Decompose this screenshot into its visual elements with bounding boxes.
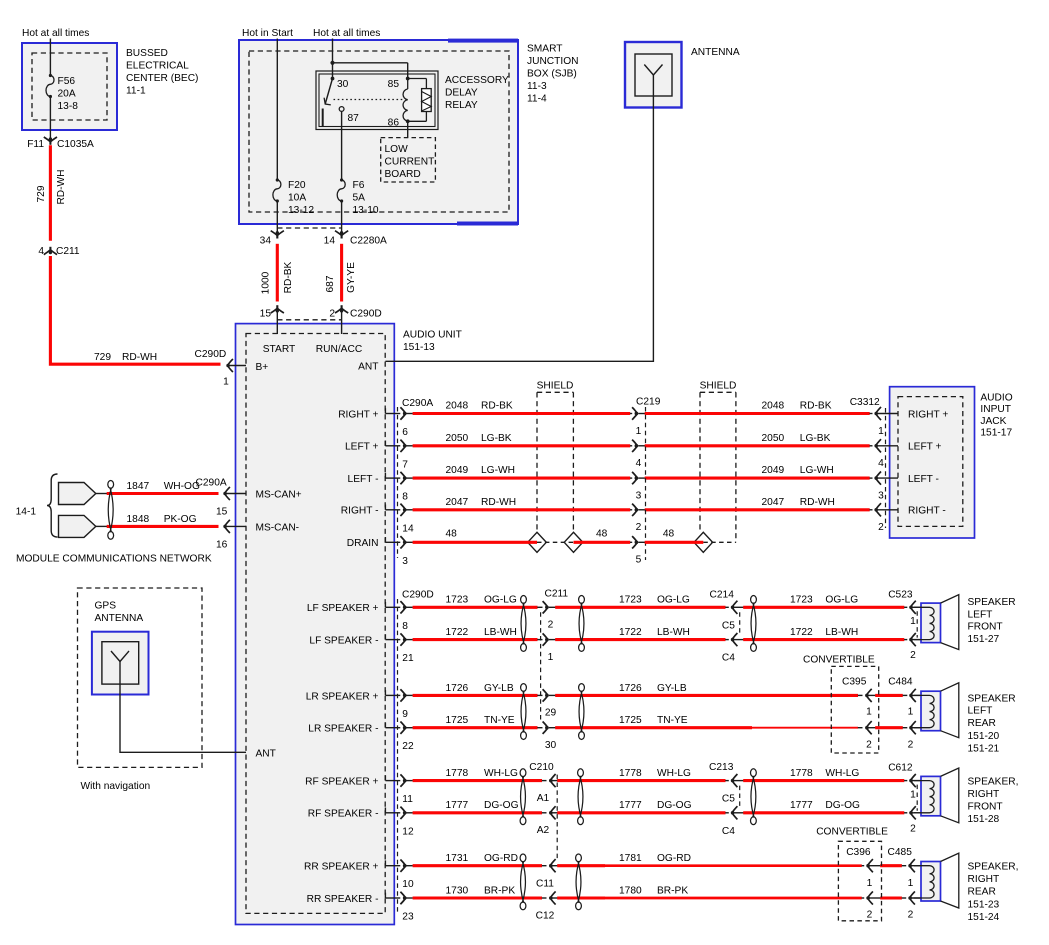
svg-text:30: 30 — [545, 740, 557, 751]
svg-text:1: 1 — [878, 426, 884, 437]
svg-text:CENTER (BEC): CENTER (BEC) — [126, 73, 198, 84]
svg-text:2049: 2049 — [446, 465, 469, 476]
svg-text:C485: C485 — [888, 847, 913, 858]
svg-text:LEFT: LEFT — [968, 706, 993, 717]
svg-text:LEFT: LEFT — [968, 609, 993, 620]
svg-text:REAR: REAR — [968, 887, 996, 898]
svg-text:1726: 1726 — [446, 683, 469, 694]
svg-text:OG-RD: OG-RD — [657, 853, 691, 864]
svg-text:PK-OG: PK-OG — [164, 514, 197, 525]
svg-text:2: 2 — [910, 650, 916, 661]
svg-text:C290A: C290A — [402, 398, 433, 409]
svg-text:1781: 1781 — [619, 853, 642, 864]
svg-text:BOX (SJB): BOX (SJB) — [527, 69, 577, 80]
svg-text:JUNCTION: JUNCTION — [527, 56, 579, 67]
svg-text:FRONT: FRONT — [968, 622, 1003, 633]
svg-text:C214: C214 — [710, 589, 735, 600]
svg-text:2050: 2050 — [762, 433, 785, 444]
svg-text:1000: 1000 — [261, 271, 272, 294]
svg-text:F6: F6 — [353, 180, 365, 191]
svg-text:C523: C523 — [888, 589, 913, 600]
svg-text:LEFT +: LEFT + — [345, 442, 379, 453]
svg-text:DG-OG: DG-OG — [484, 800, 519, 811]
svg-text:29: 29 — [545, 708, 557, 719]
svg-text:2047: 2047 — [446, 497, 469, 508]
svg-text:LG-WH: LG-WH — [800, 465, 834, 476]
svg-text:A2: A2 — [537, 825, 550, 836]
svg-text:16: 16 — [216, 540, 228, 551]
svg-text:1: 1 — [867, 878, 873, 889]
svg-text:729: 729 — [36, 185, 47, 202]
svg-text:151-28: 151-28 — [968, 814, 1000, 825]
svg-text:RD-WH: RD-WH — [56, 169, 67, 204]
svg-text:C290D: C290D — [350, 309, 382, 320]
svg-text:ELECTRICAL: ELECTRICAL — [126, 61, 189, 72]
svg-text:86: 86 — [388, 118, 400, 129]
svg-text:RIGHT +: RIGHT + — [908, 409, 948, 420]
svg-text:3: 3 — [878, 490, 884, 501]
svg-text:687: 687 — [325, 275, 336, 292]
svg-text:10A: 10A — [288, 193, 306, 204]
svg-text:1778: 1778 — [619, 768, 642, 779]
svg-text:F56: F56 — [58, 76, 76, 87]
svg-text:1725: 1725 — [619, 715, 642, 726]
svg-text:C213: C213 — [709, 762, 734, 773]
svg-text:1726: 1726 — [619, 683, 642, 694]
svg-text:SPEAKER: SPEAKER — [968, 693, 1016, 704]
svg-text:C219: C219 — [636, 396, 661, 407]
svg-text:WH-LG: WH-LG — [825, 768, 859, 779]
svg-text:30: 30 — [337, 79, 349, 90]
svg-text:4: 4 — [878, 458, 884, 469]
svg-text:85: 85 — [388, 79, 400, 90]
svg-text:1: 1 — [910, 789, 916, 800]
svg-text:DG-OG: DG-OG — [825, 800, 860, 811]
svg-text:LEFT +: LEFT + — [908, 442, 942, 453]
svg-text:JACK: JACK — [980, 416, 1006, 427]
svg-text:RD-BK: RD-BK — [481, 401, 513, 412]
svg-text:BOARD: BOARD — [385, 169, 421, 180]
svg-text:22: 22 — [402, 741, 414, 752]
svg-text:LEFT -: LEFT - — [908, 474, 939, 485]
svg-text:2: 2 — [910, 823, 916, 834]
svg-text:GY-LB: GY-LB — [484, 683, 514, 694]
svg-text:15: 15 — [260, 309, 272, 320]
svg-text:1777: 1777 — [619, 800, 642, 811]
svg-text:1723: 1723 — [619, 595, 642, 606]
svg-text:ANT: ANT — [256, 748, 276, 759]
svg-text:RIGHT -: RIGHT - — [341, 506, 379, 517]
svg-text:DRAIN: DRAIN — [347, 538, 379, 549]
svg-text:13-10: 13-10 — [353, 205, 379, 216]
svg-text:9: 9 — [402, 709, 408, 720]
svg-text:C5: C5 — [722, 794, 735, 805]
svg-text:2047: 2047 — [762, 497, 785, 508]
svg-text:13-8: 13-8 — [58, 101, 79, 112]
svg-text:SHIELD: SHIELD — [700, 380, 737, 391]
svg-text:SPEAKER,: SPEAKER, — [968, 776, 1019, 787]
svg-text:1: 1 — [908, 878, 914, 889]
svg-text:RD-WH: RD-WH — [122, 352, 157, 363]
svg-text:Hot at all times: Hot at all times — [313, 28, 380, 39]
svg-text:DG-OG: DG-OG — [657, 800, 692, 811]
svg-text:MS-CAN+: MS-CAN+ — [256, 489, 302, 500]
svg-text:F11: F11 — [27, 139, 44, 150]
svg-text:SMART: SMART — [527, 44, 562, 55]
svg-text:C11: C11 — [536, 878, 554, 889]
svg-text:RUN/ACC: RUN/ACC — [316, 344, 362, 355]
svg-text:2048: 2048 — [762, 401, 785, 412]
svg-text:TN-YE: TN-YE — [657, 715, 688, 726]
svg-text:C396: C396 — [846, 847, 871, 858]
svg-text:2: 2 — [908, 740, 914, 751]
svg-text:11-4: 11-4 — [527, 94, 547, 105]
svg-text:1848: 1848 — [127, 514, 150, 525]
svg-text:LOW: LOW — [385, 144, 409, 155]
svg-text:1778: 1778 — [790, 768, 813, 779]
svg-text:20A: 20A — [58, 89, 76, 100]
svg-text:RR SPEAKER +: RR SPEAKER + — [304, 862, 379, 873]
svg-text:1731: 1731 — [446, 853, 469, 864]
svg-text:RIGHT: RIGHT — [968, 789, 1000, 800]
svg-text:1: 1 — [548, 652, 554, 663]
svg-text:15: 15 — [216, 506, 228, 517]
svg-text:Hot in Start: Hot in Start — [242, 28, 293, 39]
svg-text:11-3: 11-3 — [527, 81, 547, 92]
svg-text:LB-WH: LB-WH — [825, 627, 858, 638]
svg-text:3: 3 — [636, 490, 642, 501]
svg-text:4: 4 — [38, 246, 44, 257]
svg-text:1: 1 — [636, 426, 642, 437]
svg-text:RD-WH: RD-WH — [800, 497, 835, 508]
svg-text:87: 87 — [348, 113, 360, 124]
svg-text:729: 729 — [94, 352, 111, 363]
svg-text:RELAY: RELAY — [445, 100, 478, 111]
svg-text:C290D: C290D — [402, 589, 434, 600]
svg-text:RF SPEAKER +: RF SPEAKER + — [305, 777, 378, 788]
svg-text:ACCESSORY: ACCESSORY — [445, 75, 509, 86]
svg-text:1778: 1778 — [446, 768, 469, 779]
svg-text:AUDIO UNIT: AUDIO UNIT — [403, 330, 462, 341]
svg-text:OG-LG: OG-LG — [484, 595, 517, 606]
svg-text:SHIELD: SHIELD — [537, 380, 574, 391]
svg-text:LG-WH: LG-WH — [481, 465, 515, 476]
svg-text:C290D: C290D — [195, 349, 227, 360]
svg-text:REAR: REAR — [968, 718, 996, 729]
svg-text:2050: 2050 — [446, 433, 469, 444]
svg-text:SPEAKER,: SPEAKER, — [968, 861, 1019, 872]
svg-text:F20: F20 — [288, 180, 306, 191]
svg-text:1777: 1777 — [446, 800, 469, 811]
svg-text:LF SPEAKER +: LF SPEAKER + — [307, 603, 379, 614]
svg-text:14: 14 — [324, 236, 336, 247]
svg-text:ANTENNA: ANTENNA — [691, 47, 740, 58]
svg-text:1722: 1722 — [790, 627, 813, 638]
svg-text:5A: 5A — [353, 193, 366, 204]
svg-text:2: 2 — [329, 309, 335, 320]
svg-text:C4: C4 — [722, 826, 735, 837]
svg-text:34: 34 — [260, 236, 272, 247]
svg-text:SPEAKER: SPEAKER — [968, 597, 1016, 608]
svg-text:C612: C612 — [888, 762, 913, 773]
svg-text:151-27: 151-27 — [968, 634, 1000, 645]
svg-text:C211: C211 — [545, 589, 569, 600]
svg-text:RD-BK: RD-BK — [283, 261, 294, 293]
svg-text:151-23: 151-23 — [968, 899, 1000, 910]
svg-text:OG-LG: OG-LG — [825, 595, 858, 606]
svg-text:DELAY: DELAY — [445, 88, 478, 99]
svg-text:MS-CAN-: MS-CAN- — [256, 522, 300, 533]
svg-text:6: 6 — [402, 427, 408, 438]
svg-text:BUSSED: BUSSED — [126, 48, 168, 59]
svg-text:1: 1 — [910, 616, 916, 627]
svg-text:Hot at all times: Hot at all times — [22, 28, 89, 39]
svg-text:1725: 1725 — [446, 715, 469, 726]
svg-text:8: 8 — [402, 621, 408, 632]
svg-text:C5: C5 — [722, 620, 735, 631]
svg-text:RF SPEAKER -: RF SPEAKER - — [308, 809, 379, 820]
svg-text:RIGHT +: RIGHT + — [338, 409, 378, 420]
svg-text:FRONT: FRONT — [968, 802, 1003, 813]
svg-text:1780: 1780 — [619, 885, 642, 896]
svg-text:1722: 1722 — [619, 627, 642, 638]
svg-text:C395: C395 — [842, 677, 867, 688]
svg-text:14: 14 — [402, 523, 414, 534]
svg-text:LR SPEAKER +: LR SPEAKER + — [306, 691, 379, 702]
svg-text:WH-LG: WH-LG — [484, 768, 518, 779]
svg-text:151-17: 151-17 — [980, 428, 1012, 439]
svg-text:151-13: 151-13 — [403, 342, 435, 353]
svg-text:RD-WH: RD-WH — [481, 497, 516, 508]
svg-text:With navigation: With navigation — [81, 781, 151, 792]
svg-text:GY-YE: GY-YE — [346, 262, 357, 293]
svg-text:AUDIO: AUDIO — [980, 393, 1012, 404]
svg-text:CONVERTIBLE: CONVERTIBLE — [816, 827, 888, 838]
svg-text:TN-YE: TN-YE — [484, 715, 515, 726]
svg-text:11: 11 — [402, 794, 413, 805]
svg-text:2: 2 — [908, 910, 914, 921]
svg-text:C290A: C290A — [196, 477, 227, 488]
svg-text:1723: 1723 — [790, 595, 813, 606]
svg-text:LEFT -: LEFT - — [348, 474, 379, 485]
svg-text:14-1: 14-1 — [16, 507, 37, 518]
svg-text:GY-LB: GY-LB — [657, 683, 687, 694]
svg-text:OG-LG: OG-LG — [657, 595, 690, 606]
svg-text:4: 4 — [636, 458, 642, 469]
svg-text:21: 21 — [402, 653, 414, 664]
svg-text:ANTENNA: ANTENNA — [95, 613, 144, 624]
svg-text:2: 2 — [548, 620, 554, 631]
svg-text:C12: C12 — [536, 911, 555, 922]
svg-text:C484: C484 — [888, 677, 913, 688]
svg-text:CURRENT: CURRENT — [385, 157, 435, 168]
svg-text:RIGHT: RIGHT — [968, 874, 1000, 885]
svg-text:1722: 1722 — [446, 627, 469, 638]
svg-text:151-21: 151-21 — [968, 744, 1000, 755]
svg-text:RIGHT -: RIGHT - — [908, 506, 946, 517]
svg-text:BR-PK: BR-PK — [657, 885, 688, 896]
svg-text:1: 1 — [866, 707, 872, 718]
svg-text:C211: C211 — [56, 246, 80, 257]
svg-text:LG-BK: LG-BK — [481, 433, 512, 444]
svg-text:1730: 1730 — [446, 885, 469, 896]
svg-text:CONVERTIBLE: CONVERTIBLE — [803, 655, 875, 666]
svg-text:WH-LG: WH-LG — [657, 768, 691, 779]
svg-text:ANT: ANT — [358, 361, 378, 372]
svg-text:GPS: GPS — [95, 600, 117, 611]
svg-text:BR-PK: BR-PK — [484, 885, 515, 896]
svg-text:OG-RD: OG-RD — [484, 853, 518, 864]
svg-text:48: 48 — [596, 529, 608, 540]
svg-text:LB-WH: LB-WH — [657, 627, 690, 638]
svg-text:10: 10 — [402, 879, 414, 890]
svg-text:12: 12 — [402, 826, 414, 837]
svg-text:3: 3 — [402, 556, 408, 567]
svg-text:13-12: 13-12 — [288, 205, 314, 216]
svg-text:2: 2 — [878, 522, 884, 533]
svg-text:C4: C4 — [722, 653, 735, 664]
svg-text:1: 1 — [223, 377, 229, 388]
svg-text:23: 23 — [402, 912, 414, 923]
svg-text:1847: 1847 — [127, 481, 150, 492]
svg-text:2: 2 — [867, 910, 873, 921]
svg-text:C2280A: C2280A — [350, 236, 387, 247]
svg-text:START: START — [263, 344, 295, 355]
svg-text:RD-BK: RD-BK — [800, 401, 832, 412]
svg-text:C1035A: C1035A — [57, 139, 94, 150]
svg-text:C210: C210 — [529, 762, 554, 773]
svg-text:B+: B+ — [256, 362, 269, 373]
svg-text:2: 2 — [636, 522, 642, 533]
svg-text:11-1: 11-1 — [126, 86, 146, 97]
svg-text:151-20: 151-20 — [968, 731, 1000, 742]
svg-text:48: 48 — [663, 529, 675, 540]
svg-text:7: 7 — [402, 459, 408, 470]
svg-text:1: 1 — [908, 707, 914, 718]
svg-text:8: 8 — [402, 492, 408, 503]
svg-text:151-24: 151-24 — [968, 912, 1000, 923]
svg-text:C3312: C3312 — [850, 397, 880, 408]
svg-text:48: 48 — [446, 529, 458, 540]
svg-text:LR SPEAKER -: LR SPEAKER - — [308, 724, 378, 735]
svg-text:INPUT: INPUT — [980, 404, 1011, 415]
svg-text:LF SPEAKER -: LF SPEAKER - — [309, 636, 378, 647]
svg-text:MODULE COMMUNICATIONS NETWORK: MODULE COMMUNICATIONS NETWORK — [16, 554, 212, 565]
svg-text:LG-BK: LG-BK — [800, 433, 831, 444]
svg-text:2048: 2048 — [446, 401, 469, 412]
svg-text:1777: 1777 — [790, 800, 813, 811]
svg-text:2049: 2049 — [762, 465, 785, 476]
svg-text:1723: 1723 — [446, 595, 469, 606]
svg-text:5: 5 — [636, 555, 642, 566]
svg-text:2: 2 — [866, 740, 872, 751]
svg-text:A1: A1 — [537, 793, 550, 804]
svg-text:LB-WH: LB-WH — [484, 627, 517, 638]
svg-text:RR SPEAKER -: RR SPEAKER - — [307, 894, 379, 905]
